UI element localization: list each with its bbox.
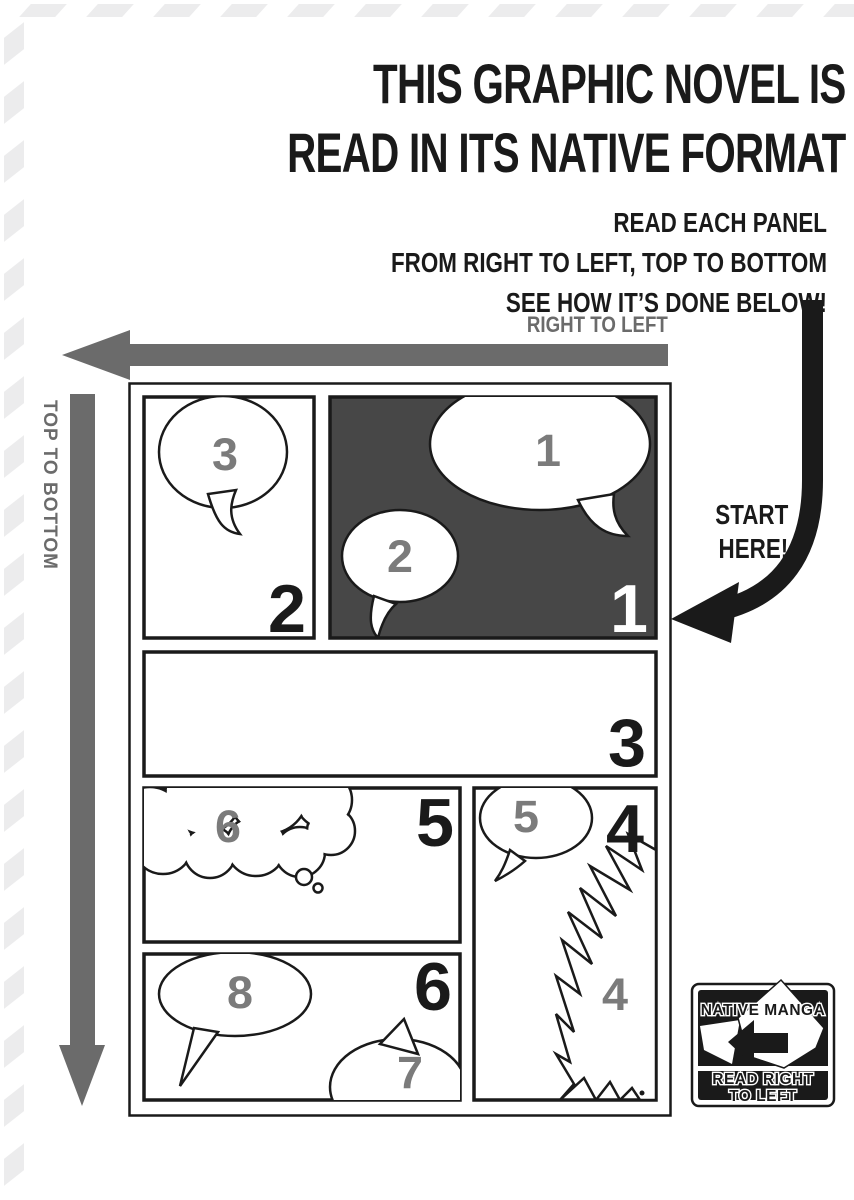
stripe-dash — [4, 966, 24, 1009]
stripe-dash — [354, 4, 402, 17]
page-title-line2: READ IN ITS NATIVE FORMAT — [288, 118, 846, 187]
curved-arrow-head — [671, 582, 739, 643]
badge-title: NATIVE MANGA — [701, 1002, 826, 1019]
bubble-number-5: 5 — [513, 791, 539, 842]
badge-line1: READ RIGHT — [712, 1071, 813, 1088]
bubble-number-1: 1 — [535, 425, 561, 476]
stripe-dash — [488, 4, 536, 17]
bubble-number-8: 8 — [227, 967, 253, 1018]
badge-line2: TO LEFT — [729, 1088, 797, 1105]
page-title-line1: THIS GRAPHIC NOVEL IS — [288, 49, 846, 118]
panel-number-6: 6 — [414, 949, 452, 1025]
comic-panel-3: 3 — [144, 652, 656, 781]
burst-dot — [640, 1091, 645, 1096]
stripe-dash — [4, 494, 24, 537]
stripe-dash — [823, 4, 854, 17]
stripe-dash — [4, 612, 24, 655]
top-to-bottom-arrow — [55, 394, 115, 1110]
stripe-dash — [4, 22, 24, 65]
panel-number-5: 5 — [416, 785, 454, 861]
stripe-dash — [4, 376, 24, 419]
panel-3-frame — [144, 652, 656, 776]
stripe-dash — [4, 258, 24, 301]
stripe-dash — [421, 4, 469, 17]
stripe-dash — [4, 140, 24, 183]
stripe-dash — [4, 730, 24, 773]
stripe-dash — [622, 4, 670, 17]
curved-arrow-shaft — [717, 300, 813, 611]
comic-panel-4: 5 4 4 — [474, 778, 656, 1100]
bubble-number-6: 6 — [215, 801, 241, 852]
stripe-dash — [555, 4, 603, 17]
stripe-dash — [220, 4, 268, 17]
comic-panel-2: 3 2 — [144, 396, 314, 647]
page-title: THIS GRAPHIC NOVEL IS READ IN ITS NATIVE… — [288, 49, 846, 187]
down-arrow-icon — [59, 394, 105, 1106]
stripe-dash — [4, 789, 24, 832]
stripe-dash — [4, 435, 24, 478]
panel-number-2: 2 — [268, 571, 306, 647]
stripe-dash — [4, 1084, 24, 1127]
stripe-dash — [287, 4, 335, 17]
right-to-left-arrow — [55, 328, 670, 383]
panel-number-4: 4 — [606, 791, 644, 867]
stripe-dash — [153, 4, 201, 17]
stripe-dash — [4, 671, 24, 714]
stripe-dash — [4, 1143, 24, 1186]
page-subtitle-line2: FROM RIGHT TO LEFT, TOP TO BOTTOM — [391, 243, 827, 283]
panel-number-1: 1 — [610, 571, 648, 647]
stripe-dash — [4, 317, 24, 360]
comic-page-diagram: 1 2 1 3 2 3 — [128, 382, 672, 1117]
stripe-dash — [4, 553, 24, 596]
stripe-dash — [86, 4, 134, 17]
stripe-dash — [756, 4, 804, 17]
thought-dot-large — [296, 869, 312, 885]
comic-panel-6: 8 7 6 — [144, 949, 466, 1117]
manga-reading-guide-page: THIS GRAPHIC NOVEL IS READ IN ITS NATIVE… — [0, 0, 854, 1200]
start-here-arrow — [655, 285, 854, 650]
stripe-dash — [4, 848, 24, 891]
stripe-dash — [4, 1025, 24, 1068]
comic-panel-1: 1 2 1 — [330, 382, 656, 647]
bubble-number-3: 3 — [212, 429, 238, 480]
stripe-dash — [4, 81, 24, 124]
stripe-dash — [4, 907, 24, 950]
panel-number-3: 3 — [608, 705, 646, 781]
thought-dot-small — [314, 884, 323, 893]
stripe-dash — [689, 4, 737, 17]
bubble-number-2: 2 — [387, 531, 413, 582]
bubble-number-4: 4 — [602, 969, 628, 1020]
left-arrow-icon — [62, 330, 668, 380]
bubble-number-7: 7 — [397, 1047, 423, 1098]
stripe-dash — [19, 4, 67, 17]
native-manga-badge: NATIVE MANGA READ RIGHT TO LEFT — [688, 978, 844, 1130]
page-subtitle-line1: READ EACH PANEL — [391, 203, 827, 243]
stripe-dash — [4, 199, 24, 242]
